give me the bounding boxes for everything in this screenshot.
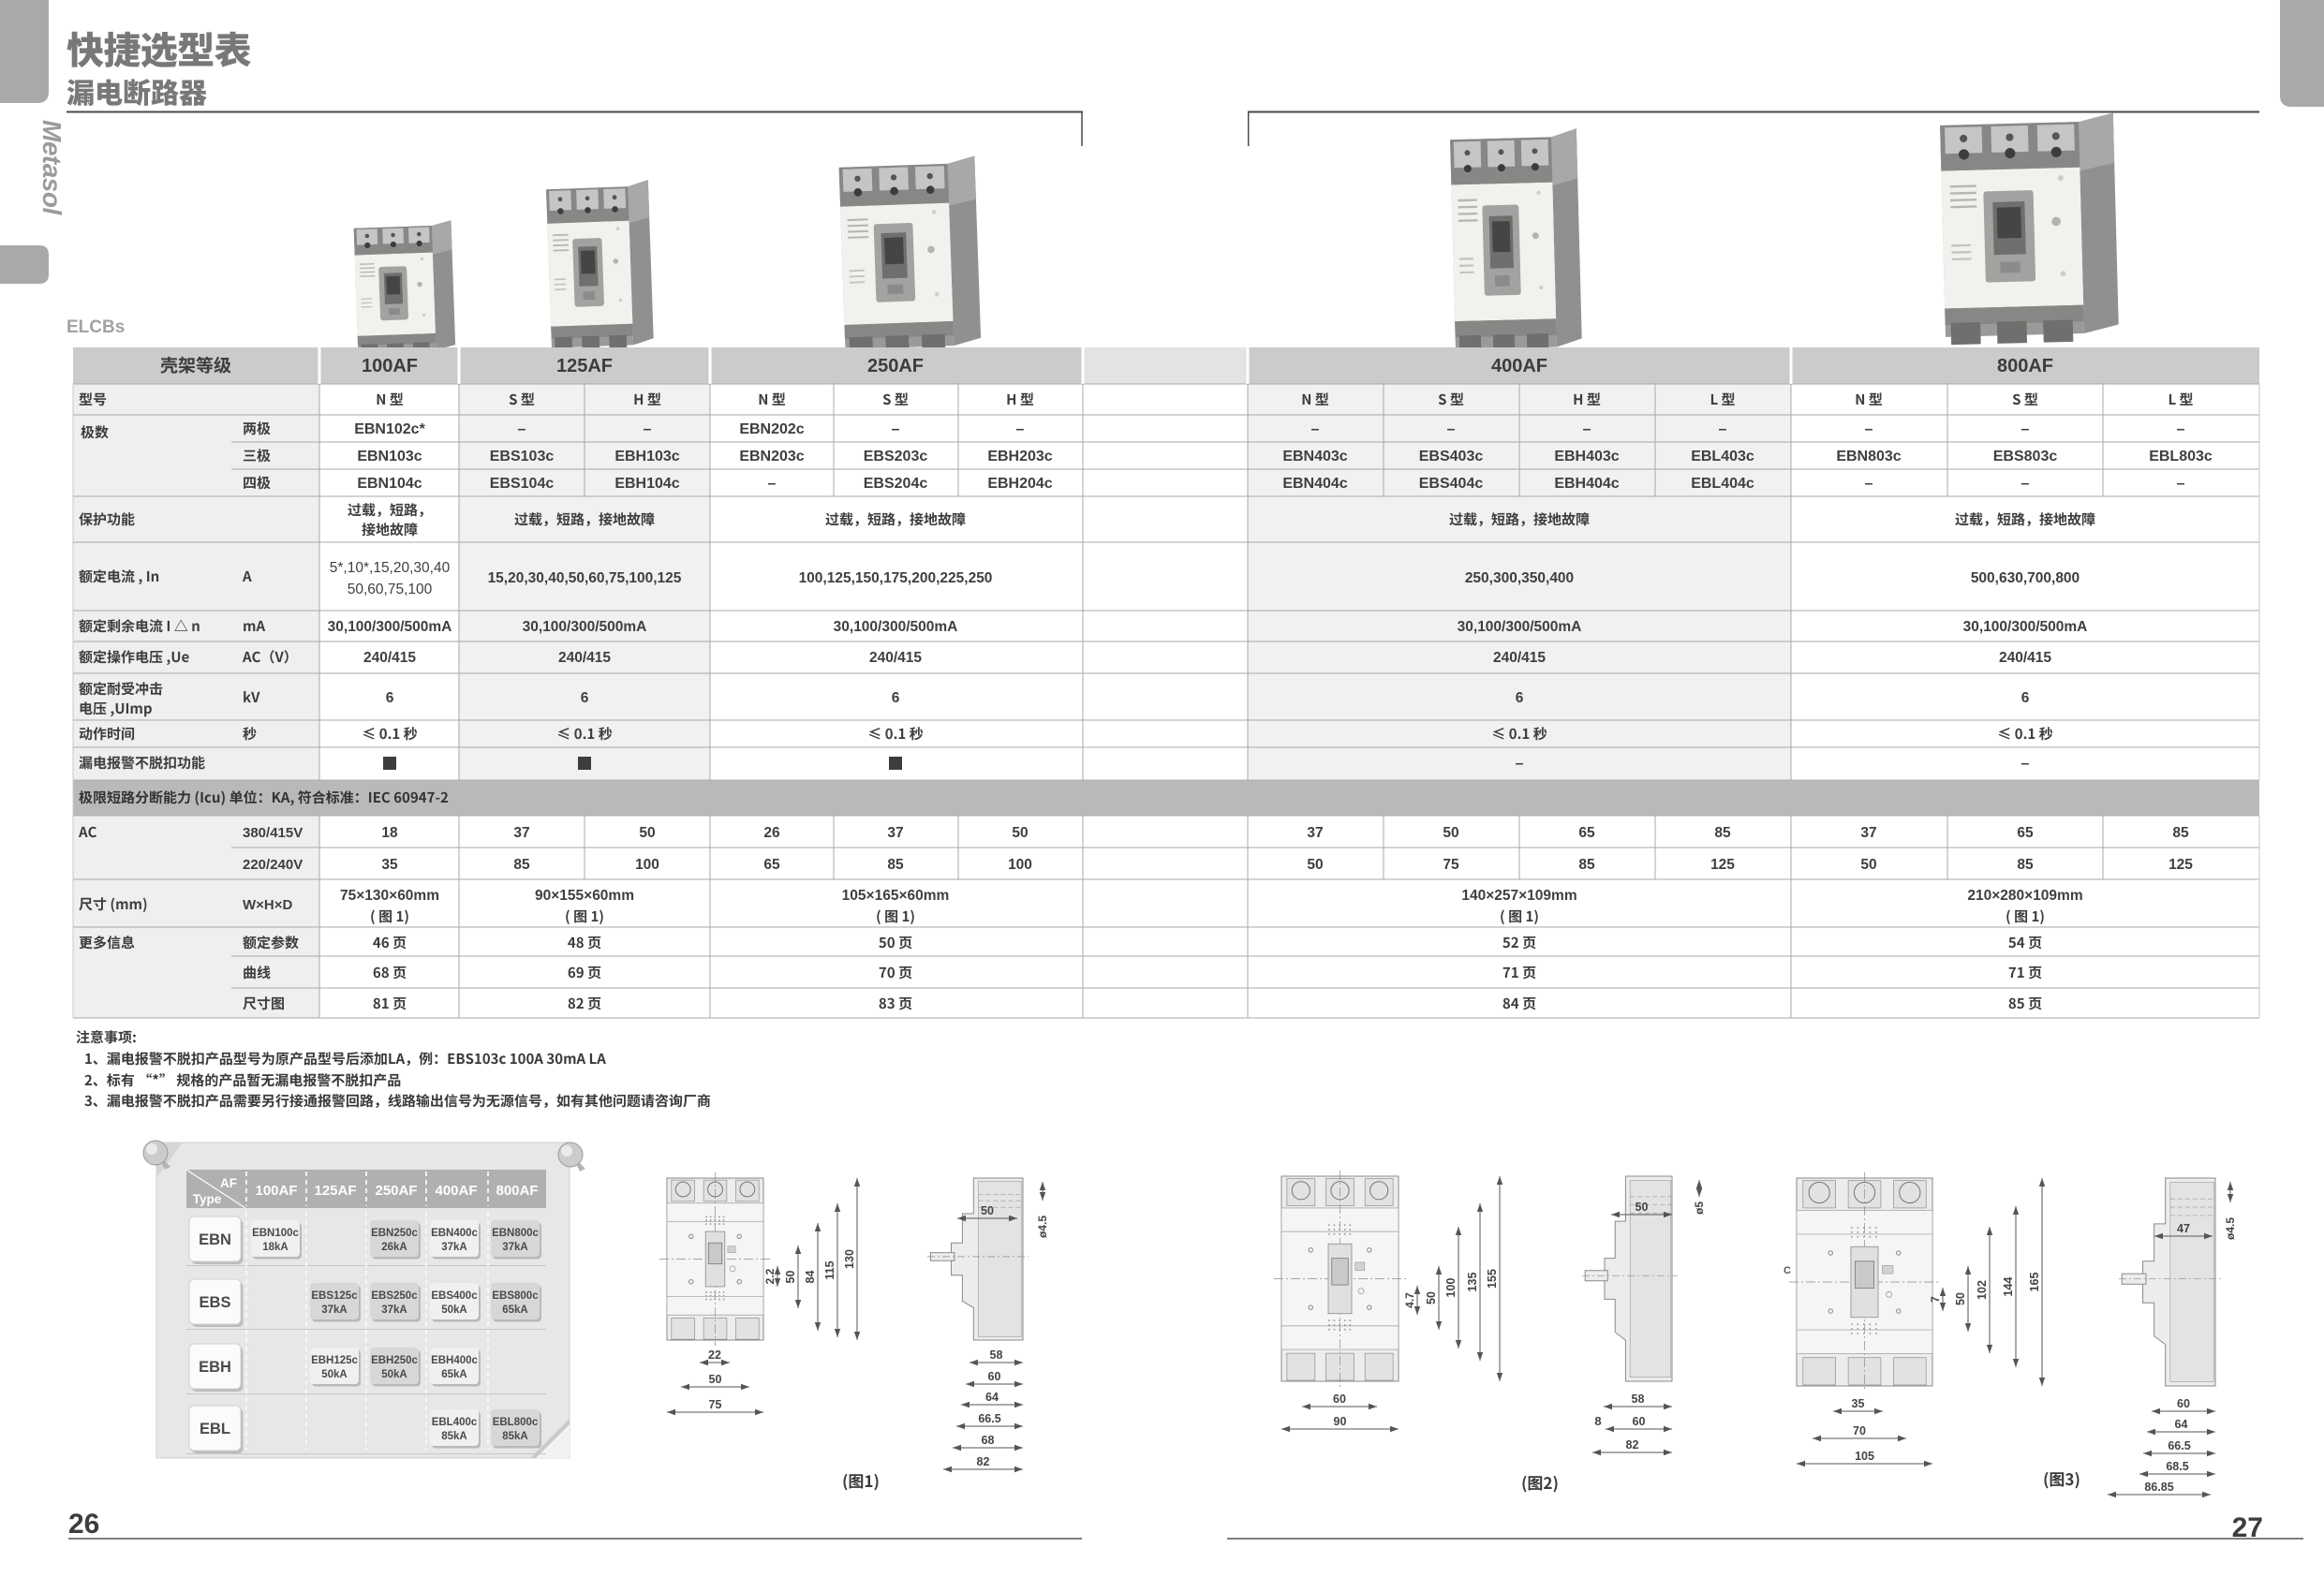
svg-text:ø4.5: ø4.5 <box>2224 1217 2237 1240</box>
svg-text:EBN203c: EBN203c <box>739 449 804 464</box>
svg-text:50: 50 <box>1636 1201 1649 1214</box>
svg-text:50kA: 50kA <box>441 1304 467 1316</box>
svg-text:EBS803c: EBS803c <box>1993 449 2058 464</box>
svg-text:–: – <box>768 476 777 492</box>
svg-text:6: 6 <box>386 690 394 706</box>
svg-text:7: 7 <box>1929 1296 1942 1303</box>
svg-text:82: 82 <box>1626 1438 1639 1452</box>
svg-text:60: 60 <box>1333 1393 1346 1406</box>
svg-text:18kA: 18kA <box>262 1242 289 1253</box>
svg-text:ø4.5: ø4.5 <box>1036 1216 1049 1238</box>
svg-text:50kA: 50kA <box>381 1369 407 1380</box>
svg-text:65: 65 <box>1578 825 1595 841</box>
svg-text:240/415: 240/415 <box>869 650 922 666</box>
svg-text:144: 144 <box>2002 1277 2015 1297</box>
svg-text:37: 37 <box>887 825 903 841</box>
svg-text:EBS404c: EBS404c <box>1419 476 1484 492</box>
svg-text:125: 125 <box>1710 857 1735 873</box>
svg-text:–: – <box>644 421 652 437</box>
svg-text:100: 100 <box>1444 1278 1458 1298</box>
svg-text:400AF: 400AF <box>435 1183 477 1199</box>
svg-text:125: 125 <box>2169 857 2193 873</box>
svg-text:50: 50 <box>1443 825 1458 841</box>
svg-text:64: 64 <box>985 1391 999 1404</box>
svg-text:100: 100 <box>635 857 659 873</box>
svg-text:66.5: 66.5 <box>2168 1439 2190 1452</box>
svg-text:50: 50 <box>1425 1291 1438 1304</box>
svg-text:90×155×60mm: 90×155×60mm <box>535 888 634 904</box>
svg-text:EBL400c: EBL400c <box>432 1417 478 1428</box>
svg-text:–: – <box>518 421 526 437</box>
svg-text:6: 6 <box>892 690 900 706</box>
svg-text:90: 90 <box>1334 1415 1347 1428</box>
svg-text:85: 85 <box>2017 857 2034 873</box>
svg-text:–: – <box>892 421 900 437</box>
svg-text:EBH104c: EBH104c <box>614 476 679 492</box>
svg-text:85: 85 <box>513 857 530 873</box>
svg-text:EBL803c: EBL803c <box>2149 449 2213 464</box>
svg-text:8: 8 <box>1594 1414 1601 1428</box>
svg-text:800AF: 800AF <box>496 1183 538 1199</box>
svg-text:84: 84 <box>804 1271 817 1284</box>
svg-text:EBS400c: EBS400c <box>431 1290 478 1302</box>
svg-text:60: 60 <box>2177 1397 2190 1410</box>
svg-text:75×130×60mm: 75×130×60mm <box>340 888 439 904</box>
svg-text:125AF: 125AF <box>314 1183 356 1199</box>
svg-text:30,100/300/500mA: 30,100/300/500mA <box>1963 619 2088 635</box>
svg-text:EBN400c: EBN400c <box>431 1228 478 1239</box>
svg-text:50: 50 <box>639 825 655 841</box>
svg-text:2.2: 2.2 <box>763 1268 777 1284</box>
svg-text:27: 27 <box>2232 1512 2263 1543</box>
svg-text:–: – <box>2021 421 2030 437</box>
svg-text:37kA: 37kA <box>321 1304 348 1316</box>
svg-text:115: 115 <box>823 1260 836 1279</box>
svg-text:50: 50 <box>784 1271 797 1284</box>
svg-text:75: 75 <box>709 1398 722 1411</box>
svg-text:105×165×60mm: 105×165×60mm <box>842 888 950 904</box>
svg-text:140×257×109mm: 140×257×109mm <box>1461 888 1576 904</box>
svg-text:240/415: 240/415 <box>558 650 611 666</box>
svg-text:EBH400c: EBH400c <box>431 1355 478 1366</box>
svg-text:50: 50 <box>709 1373 722 1386</box>
svg-text:15,20,30,40,50,60,75,100,125: 15,20,30,40,50,60,75,100,125 <box>488 570 682 586</box>
svg-text:EBL: EBL <box>200 1421 230 1437</box>
svg-text:102: 102 <box>1976 1280 1989 1300</box>
svg-text:–: – <box>2021 756 2030 772</box>
svg-text:–: – <box>1016 421 1025 437</box>
svg-text:240/415: 240/415 <box>1999 650 2051 666</box>
svg-text:65: 65 <box>2017 825 2034 841</box>
svg-text:50: 50 <box>1012 825 1028 841</box>
svg-text:30,100/300/500mA: 30,100/300/500mA <box>328 619 452 635</box>
svg-text:240/415: 240/415 <box>363 650 416 666</box>
svg-text:130: 130 <box>843 1249 856 1269</box>
svg-text:EBN100c: EBN100c <box>252 1228 299 1239</box>
svg-text:100: 100 <box>1008 857 1032 873</box>
svg-text:210×280×109mm: 210×280×109mm <box>1967 888 2082 904</box>
svg-text:–: – <box>2177 421 2185 437</box>
svg-text:EBH403c: EBH403c <box>1554 449 1619 464</box>
svg-text:30,100/300/500mA: 30,100/300/500mA <box>523 619 647 635</box>
svg-text:500,630,700,800: 500,630,700,800 <box>1971 570 2080 586</box>
svg-text:–: – <box>1311 421 1320 437</box>
svg-text:EBS104c: EBS104c <box>490 476 555 492</box>
svg-text:EBN800c: EBN800c <box>492 1228 539 1239</box>
svg-text:85: 85 <box>1578 857 1595 873</box>
svg-text:EBS103c: EBS103c <box>490 449 555 464</box>
svg-text:50,60,75,100: 50,60,75,100 <box>348 582 433 597</box>
svg-text:105: 105 <box>1855 1450 1874 1463</box>
svg-text:26: 26 <box>68 1509 99 1540</box>
svg-text:26kA: 26kA <box>381 1242 407 1253</box>
svg-text:65kA: 65kA <box>441 1369 467 1380</box>
svg-text:EBH103c: EBH103c <box>614 449 679 464</box>
svg-text:EBS125c: EBS125c <box>311 1290 358 1302</box>
svg-text:W×H×D: W×H×D <box>243 897 293 913</box>
svg-text:37kA: 37kA <box>502 1242 528 1253</box>
svg-text:EBS800c: EBS800c <box>492 1290 539 1302</box>
svg-text:85: 85 <box>1714 825 1731 841</box>
svg-text:50: 50 <box>1860 857 1876 873</box>
svg-text:240/415: 240/415 <box>1493 650 1546 666</box>
svg-text:EBN403c: EBN403c <box>1282 449 1347 464</box>
svg-text:250AF: 250AF <box>867 356 924 376</box>
svg-text:EBN: EBN <box>199 1231 231 1248</box>
svg-text:100,125,150,175,200,225,250: 100,125,150,175,200,225,250 <box>799 570 993 586</box>
svg-text:–: – <box>2177 476 2185 492</box>
svg-text:37: 37 <box>1307 825 1323 841</box>
svg-text:85: 85 <box>887 857 904 873</box>
svg-text:82: 82 <box>977 1455 990 1468</box>
svg-text:EBL403c: EBL403c <box>1691 449 1754 464</box>
svg-text:86.85: 86.85 <box>2144 1481 2173 1494</box>
svg-text:ø5: ø5 <box>1693 1201 1706 1215</box>
svg-text:250AF: 250AF <box>375 1183 417 1199</box>
svg-text:EBS203c: EBS203c <box>864 449 928 464</box>
svg-text:50kA: 50kA <box>321 1369 348 1380</box>
svg-text:6: 6 <box>581 690 589 706</box>
svg-text:EBL800c: EBL800c <box>493 1417 539 1428</box>
svg-text:400AF: 400AF <box>1491 356 1547 376</box>
svg-text:30,100/300/500mA: 30,100/300/500mA <box>834 619 958 635</box>
svg-text:68: 68 <box>982 1434 995 1447</box>
svg-text:100AF: 100AF <box>362 356 418 376</box>
svg-text:47: 47 <box>2177 1222 2190 1235</box>
svg-text:C: C <box>1784 1265 1791 1276</box>
svg-text:85: 85 <box>2172 825 2189 841</box>
svg-text:58: 58 <box>1632 1393 1645 1406</box>
svg-text:250,300,350,400: 250,300,350,400 <box>1465 570 1574 586</box>
svg-text:EBS204c: EBS204c <box>864 476 928 492</box>
svg-text:ELCBs: ELCBs <box>67 317 125 337</box>
svg-text:35: 35 <box>381 857 398 873</box>
svg-text:135: 135 <box>1466 1273 1479 1292</box>
svg-text:–: – <box>1583 421 1591 437</box>
svg-text:380/415V: 380/415V <box>243 825 303 841</box>
svg-text:68.5: 68.5 <box>2166 1460 2188 1473</box>
svg-text:65kA: 65kA <box>502 1304 528 1316</box>
svg-text:EBN803c: EBN803c <box>1836 449 1901 464</box>
svg-text:58: 58 <box>990 1349 1003 1362</box>
svg-text:EBH: EBH <box>199 1359 231 1376</box>
svg-text:30,100/300/500mA: 30,100/300/500mA <box>1458 619 1582 635</box>
svg-text:EBN202c: EBN202c <box>739 421 804 437</box>
svg-text:70: 70 <box>1853 1424 1866 1437</box>
svg-text:EBH250c: EBH250c <box>371 1355 418 1366</box>
svg-text:EBN102c*: EBN102c* <box>354 421 425 437</box>
svg-text:EBN404c: EBN404c <box>1282 476 1347 492</box>
svg-text:EBS403c: EBS403c <box>1419 449 1484 464</box>
svg-text:–: – <box>1865 421 1873 437</box>
svg-text:4.7: 4.7 <box>1403 1292 1416 1308</box>
svg-text:50: 50 <box>1954 1292 1967 1305</box>
svg-text:64: 64 <box>2175 1418 2188 1431</box>
svg-text:37kA: 37kA <box>441 1242 467 1253</box>
svg-text:26: 26 <box>763 825 780 841</box>
svg-text:65: 65 <box>763 857 780 873</box>
svg-text:6: 6 <box>1516 690 1524 706</box>
svg-text:60: 60 <box>988 1370 1001 1383</box>
svg-text:37kA: 37kA <box>381 1304 407 1316</box>
svg-text:155: 155 <box>1486 1269 1499 1289</box>
svg-text:Type: Type <box>193 1192 222 1206</box>
svg-text:85kA: 85kA <box>441 1431 467 1442</box>
svg-text:EBN250c: EBN250c <box>371 1228 418 1239</box>
svg-text:66.5: 66.5 <box>978 1412 1000 1425</box>
svg-text:–: – <box>1447 421 1456 437</box>
svg-text:EBN103c: EBN103c <box>357 449 422 464</box>
svg-text:75: 75 <box>1443 857 1459 873</box>
svg-text:50: 50 <box>1307 857 1323 873</box>
svg-text:–: – <box>1516 756 1524 772</box>
svg-text:18: 18 <box>381 825 398 841</box>
svg-text:EBS: EBS <box>200 1294 231 1311</box>
svg-text:6: 6 <box>2021 690 2030 706</box>
svg-text:37: 37 <box>1860 825 1876 841</box>
svg-text:EBH204c: EBH204c <box>987 476 1052 492</box>
svg-text:EBH125c: EBH125c <box>311 1355 358 1366</box>
svg-text:50: 50 <box>981 1204 994 1217</box>
svg-text:EBH203c: EBH203c <box>987 449 1052 464</box>
svg-text:5*,10*,15,20,30,40: 5*,10*,15,20,30,40 <box>330 560 451 576</box>
svg-text:220/240V: 220/240V <box>243 857 303 873</box>
svg-text:22: 22 <box>708 1349 721 1362</box>
svg-text:35: 35 <box>1852 1397 1865 1410</box>
svg-text:165: 165 <box>2028 1273 2041 1292</box>
svg-text:100AF: 100AF <box>255 1183 297 1199</box>
svg-text:–: – <box>1719 421 1727 437</box>
svg-text:–: – <box>1865 476 1873 492</box>
svg-text:85kA: 85kA <box>502 1431 528 1442</box>
svg-text:EBL404c: EBL404c <box>1691 476 1754 492</box>
svg-text:EBS250c: EBS250c <box>371 1290 418 1302</box>
svg-text:125AF: 125AF <box>556 356 613 376</box>
svg-text:37: 37 <box>513 825 529 841</box>
svg-text:–: – <box>2021 476 2030 492</box>
svg-text:60: 60 <box>1633 1415 1646 1428</box>
svg-text:AF: AF <box>220 1176 237 1190</box>
svg-text:EBN104c: EBN104c <box>357 476 422 492</box>
svg-text:Metasol: Metasol <box>37 120 67 215</box>
svg-text:800AF: 800AF <box>1997 356 2053 376</box>
svg-text:EBH404c: EBH404c <box>1554 476 1619 492</box>
